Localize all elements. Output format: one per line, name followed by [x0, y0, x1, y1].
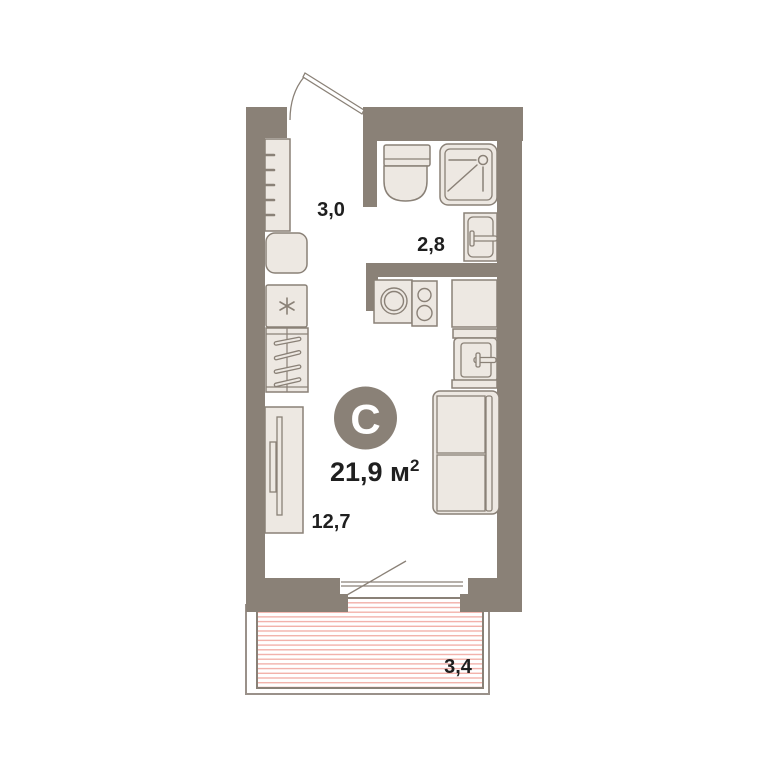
label-hallway-area: 3,0 — [317, 199, 345, 221]
bathroom-sink — [464, 213, 497, 261]
studio-badge-letter: С — [350, 396, 380, 443]
cabinet-ledge — [452, 380, 497, 388]
studio-badge: С — [334, 387, 397, 450]
bottom-wall-left — [246, 578, 348, 612]
toilet-tank — [384, 145, 430, 166]
floor-plan-canvas: 3,0 2,8 12,7 3,4 С 21,9 м2 — [0, 0, 768, 768]
entrance-door-swing-arc — [290, 77, 304, 120]
stove-counter — [412, 281, 437, 326]
top-wall — [363, 107, 523, 141]
sofa-cushion-top — [437, 396, 485, 453]
sofa — [433, 391, 499, 514]
toilet-bowl — [384, 166, 427, 201]
top-left-wall-block — [246, 107, 287, 138]
left-wall — [246, 107, 265, 612]
hallway-furniture — [263, 139, 307, 327]
label-balcony-area: 3,4 — [444, 656, 473, 678]
kitchen-cabinet — [454, 338, 497, 382]
kitchen-cabinet-handle-tick — [476, 353, 480, 367]
label-total-area: 21,9 м2 — [330, 456, 420, 487]
wardrobes — [265, 328, 308, 533]
toilet — [384, 145, 430, 201]
entrance-door-leaf — [303, 73, 364, 114]
bottom-wall-right — [460, 578, 522, 612]
bathroom-kitchen-wall — [366, 263, 497, 277]
bathroom-sink-faucet — [471, 236, 497, 241]
sofa-backrest — [486, 396, 492, 511]
bathroom-partition-wall — [363, 138, 377, 207]
sofa-cushion-bottom — [437, 455, 485, 511]
right-wall — [497, 138, 522, 612]
balcony-door-swing-line — [347, 561, 406, 595]
floor-plan: 3,0 2,8 12,7 3,4 С 21,9 м2 — [0, 0, 768, 768]
pouf — [266, 233, 307, 273]
total-area-value: 21,9 м — [330, 457, 410, 487]
corner-counter — [452, 280, 497, 327]
kitchen — [374, 280, 497, 388]
label-room-area: 12,7 — [312, 511, 351, 533]
balcony-window — [341, 561, 463, 595]
bathroom-sink-faucet-handle — [470, 231, 474, 246]
label-bathroom-area: 2,8 — [417, 234, 445, 256]
shower — [440, 144, 497, 205]
entrance-door — [290, 73, 364, 120]
total-area-superscript: 2 — [410, 456, 419, 475]
counter-strip — [453, 329, 497, 338]
kitchen-sink-unit — [374, 280, 412, 323]
stove-unit — [412, 281, 437, 326]
